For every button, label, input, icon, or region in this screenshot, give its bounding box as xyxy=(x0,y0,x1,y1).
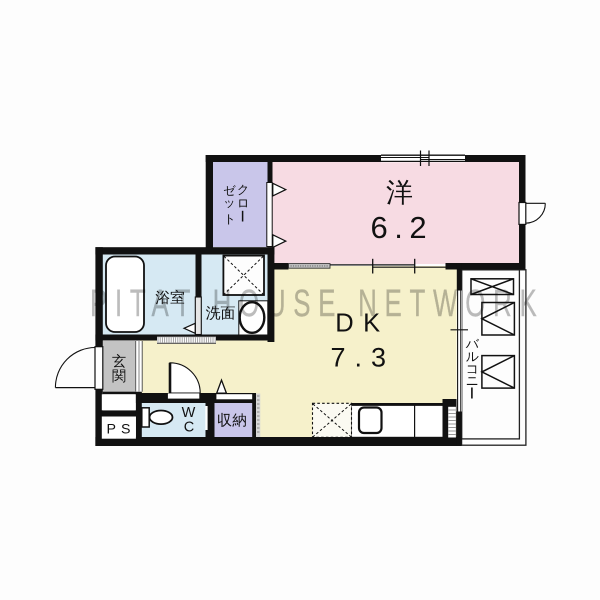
svg-text:7.3: 7.3 xyxy=(331,343,396,373)
svg-text:PS: PS xyxy=(107,422,136,438)
svg-text:6.2: 6.2 xyxy=(371,210,434,245)
svg-text:DK: DK xyxy=(335,310,389,338)
svg-text:PITAT HOUSE NETWORK: PITAT HOUSE NETWORK xyxy=(90,282,544,324)
svg-text:C: C xyxy=(184,420,194,436)
